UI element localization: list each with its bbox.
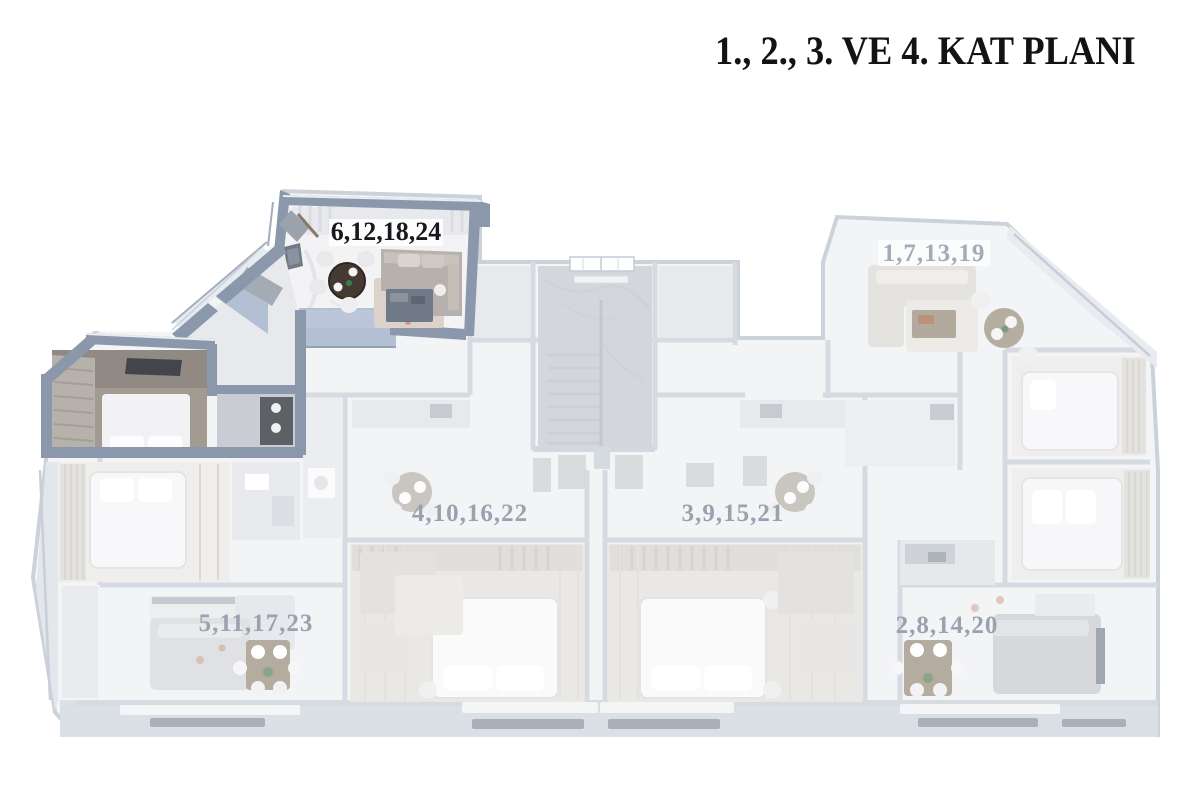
svg-text:1,7,13,19: 1,7,13,19 <box>883 240 986 267</box>
svg-text:2,8,14,20: 2,8,14,20 <box>896 612 999 639</box>
svg-text:4,10,16,22: 4,10,16,22 <box>412 500 528 527</box>
svg-text:3,9,15,21: 3,9,15,21 <box>682 500 785 527</box>
svg-text:5,11,17,23: 5,11,17,23 <box>199 610 314 637</box>
svg-text:6,12,18,24: 6,12,18,24 <box>331 217 442 246</box>
